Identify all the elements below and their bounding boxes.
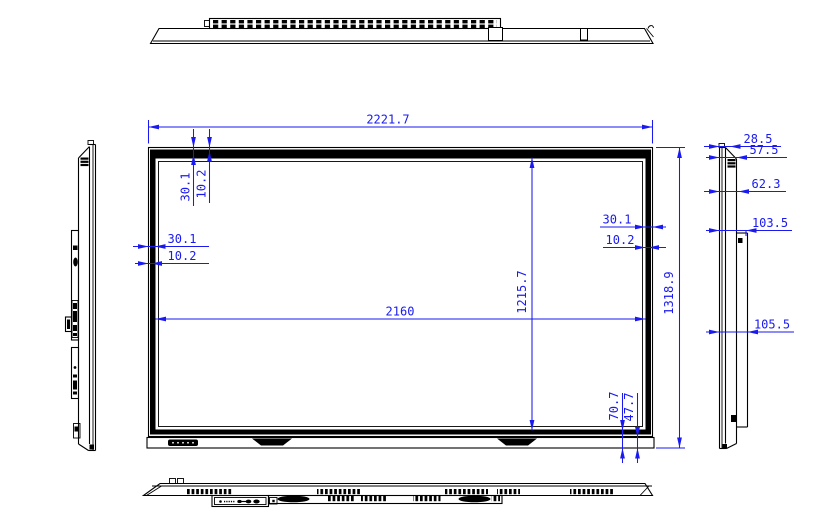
dim-bottom-bezel-inner: 47.7 — [622, 393, 640, 463]
vent-hatch — [81, 158, 89, 167]
display-area — [159, 162, 643, 427]
io-compartment-lower — [72, 348, 79, 399]
dim-side-depth-mid-label: 103.5 — [752, 216, 788, 230]
dim-top-bezel: 30.1 — [179, 129, 196, 206]
dim-right-bezel-inner-label: 10.2 — [606, 233, 635, 247]
technical-drawing-page: 2221.7 2160 1318.9 1215.7 30.1 — [0, 0, 840, 520]
back-box — [737, 233, 748, 427]
dim-top-bezel-inner-label: 10.2 — [195, 170, 209, 199]
front-view — [147, 148, 654, 449]
dim-top-bezel-inner: 10.2 — [195, 129, 212, 203]
dim-side-depth-upper: 62.3 — [704, 177, 786, 194]
vent-hatch — [728, 159, 736, 168]
dim-active-height-label: 1215.7 — [515, 270, 529, 313]
dim-side-depth-back-label: 105.5 — [754, 318, 790, 332]
connector-bay — [212, 496, 269, 507]
dim-side-depth-top-label: 57.5 — [750, 143, 779, 157]
bottom-panel — [269, 496, 503, 505]
top-view — [151, 19, 654, 44]
dim-active-width: 2160 — [156, 305, 646, 322]
dim-left-bezel-inner: 10.2 — [135, 249, 209, 266]
bezel — [150, 150, 651, 435]
dim-bottom-bezel-inner-label: 47.7 — [622, 393, 636, 422]
io-ports — [72, 246, 78, 338]
dim-active-width-label: 2160 — [386, 305, 415, 319]
dim-overall-width-label: 2221.7 — [366, 113, 409, 127]
left-side-view — [66, 141, 96, 451]
dim-bottom-bezel-label: 70.7 — [607, 392, 621, 421]
io-ports-lower — [73, 366, 77, 394]
top-notch — [489, 28, 503, 41]
drawing-canvas: 2221.7 2160 1318.9 1215.7 30.1 — [0, 0, 840, 520]
bottom-vents — [187, 489, 613, 494]
dim-right-bezel: 30.1 — [600, 213, 666, 230]
right-side-view — [719, 144, 748, 449]
dim-left-bezel: 30.1 — [133, 232, 209, 249]
foot — [90, 445, 95, 450]
dim-overall-height-label: 1318.9 — [662, 271, 676, 314]
dim-left-bezel-inner-label: 10.2 — [168, 249, 197, 263]
top-vent-slots — [213, 20, 497, 28]
dim-top-bezel-label: 30.1 — [179, 173, 193, 202]
control-panel — [168, 440, 198, 447]
speaker — [459, 496, 491, 503]
dim-overall-width: 2221.7 — [149, 113, 653, 144]
dim-side-depth-mid: 103.5 — [706, 216, 792, 236]
mount-tab — [88, 141, 94, 145]
dim-side-depth-upper-label: 62.3 — [752, 177, 781, 191]
dimensions: 2221.7 2160 1318.9 1215.7 30.1 — [133, 113, 794, 464]
speaker-grille — [497, 439, 537, 446]
top-notch — [581, 29, 588, 41]
dim-right-bezel-label: 30.1 — [603, 213, 632, 227]
dim-right-bezel-inner: 10.2 — [603, 233, 666, 250]
dim-left-bezel-label: 30.1 — [168, 232, 197, 246]
dim-active-height: 1215.7 — [515, 158, 534, 431]
outer-frame — [149, 148, 653, 437]
speaker — [278, 496, 310, 503]
foot — [723, 444, 728, 449]
speaker-grille — [252, 439, 292, 446]
dim-overall-height: 1318.9 — [656, 148, 685, 449]
bottom-bar — [147, 438, 654, 449]
bottom-view — [144, 479, 653, 507]
